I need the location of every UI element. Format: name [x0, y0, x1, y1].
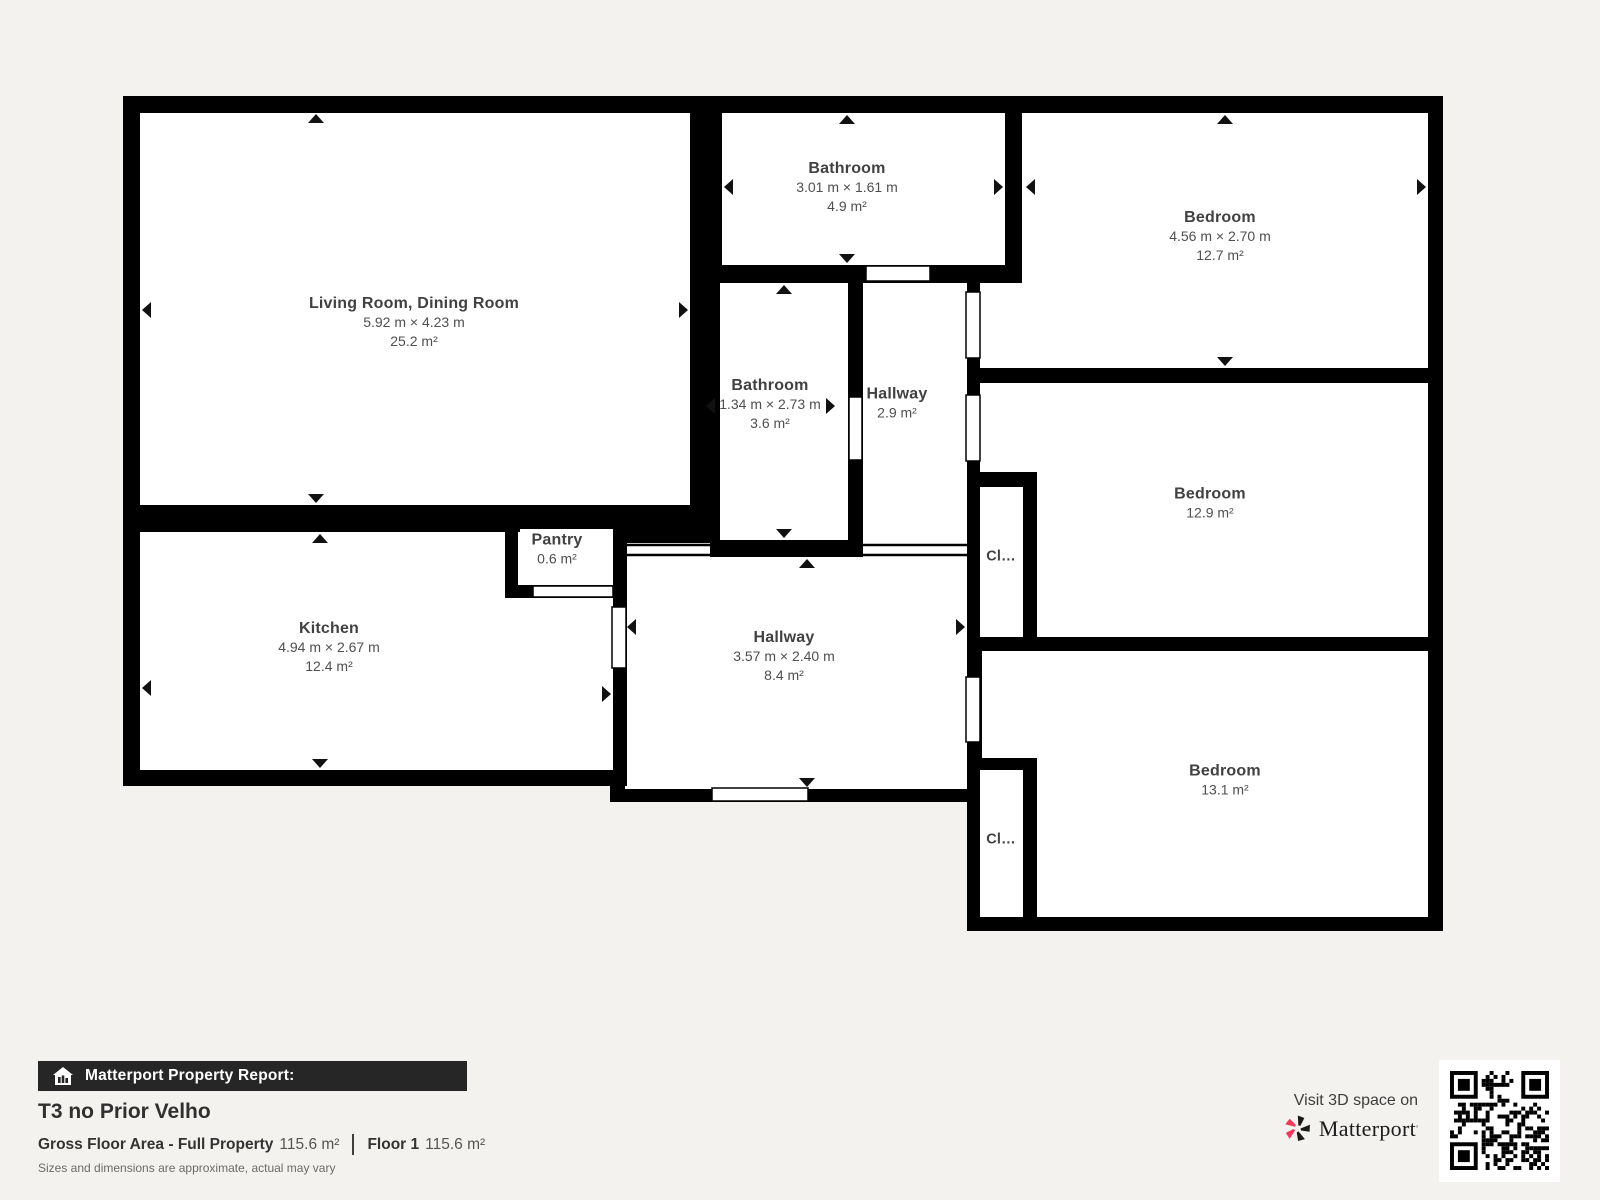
room-bathroom-top: [722, 113, 1005, 265]
door-bathroom-mid: [849, 397, 862, 460]
visit-3d-text: Visit 3D space on: [1294, 1092, 1418, 1110]
qr-code: [1439, 1060, 1560, 1182]
door-pantry: [533, 586, 613, 597]
floor-area-value: 115.6 m²: [425, 1136, 485, 1154]
room-bedroom-bottom: [982, 651, 1428, 917]
gross-floor-area-value: 115.6 m²: [279, 1136, 339, 1154]
matterport-brand: Matterport’: [1284, 1115, 1418, 1142]
room-living-dining: [140, 113, 690, 505]
door-bedroom-mid: [966, 395, 980, 461]
report-header-bar: Matterport Property Report:: [38, 1061, 467, 1091]
door-entry: [712, 788, 808, 801]
house-icon: [53, 1067, 73, 1086]
matterport-logo-icon: [1284, 1115, 1311, 1142]
room-bedroom-top-ext: [980, 283, 1022, 368]
metrics-divider: [352, 1134, 354, 1155]
floor-area-metrics: Gross Floor Area - Full Property 115.6 m…: [38, 1134, 485, 1155]
room-pantry: [518, 529, 613, 585]
floor-label: Floor 1: [367, 1136, 419, 1154]
qr-pattern: [1450, 1071, 1549, 1170]
door-bedroom-bottom: [966, 677, 980, 742]
matterport-floorplan-report: Living Room, Dining Room 5.92 m × 4.23 m…: [0, 0, 1600, 1200]
brand-mark: ’: [1416, 1124, 1418, 1134]
matterport-wordmark: Matterport: [1319, 1116, 1416, 1142]
gross-floor-area-label: Gross Floor Area - Full Property: [38, 1136, 273, 1154]
door-bathroom-top: [866, 266, 930, 281]
report-label: Matterport Property Report:: [85, 1067, 295, 1085]
room-hallway-small: [863, 283, 967, 543]
room-hallway-main: [625, 557, 967, 789]
floor-plan: [0, 0, 1600, 1200]
room-closet-1: [980, 487, 1023, 637]
door-kitchen: [612, 607, 626, 668]
disclaimer-text: Sizes and dimensions are approximate, ac…: [38, 1161, 335, 1175]
room-closet-2: [980, 770, 1023, 917]
room-bedroom-top: [1022, 113, 1428, 368]
property-title: T3 no Prior Velho: [38, 1100, 211, 1124]
door-bedroom-top: [966, 292, 980, 358]
room-bedroom-mid: [980, 383, 1428, 637]
